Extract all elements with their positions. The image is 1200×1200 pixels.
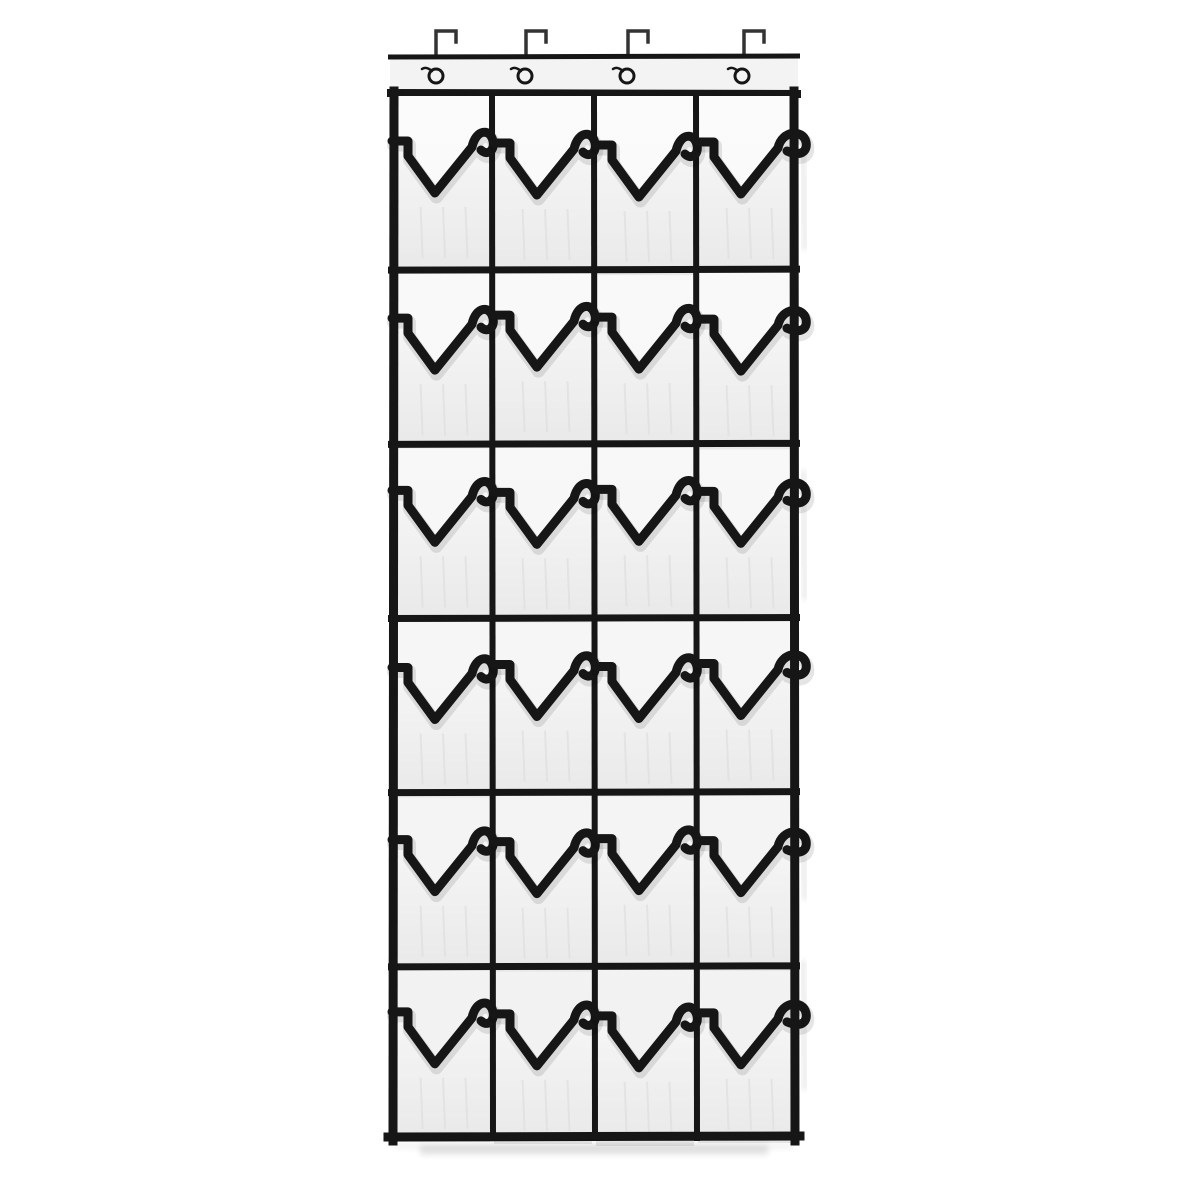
edge-smudge bbox=[803, 960, 805, 1090]
frame-left bbox=[393, 91, 394, 1141]
edge-smudge bbox=[803, 470, 805, 600]
door-hook-icon bbox=[436, 31, 456, 58]
row-seam bbox=[388, 966, 800, 967]
frame-bottom bbox=[388, 1136, 800, 1137]
header-band bbox=[387, 56, 801, 94]
row-seam bbox=[388, 443, 800, 444]
frame-right bbox=[794, 91, 795, 1141]
band-fabric bbox=[390, 58, 798, 93]
row-seam bbox=[388, 269, 800, 270]
edge-smudge bbox=[803, 150, 805, 250]
band-bottom-trim bbox=[387, 93, 801, 94]
edge-smudge bbox=[803, 830, 805, 900]
drop-shadow-wide bbox=[395, 1143, 793, 1149]
row-seam bbox=[388, 618, 800, 619]
product-photo bbox=[0, 0, 1200, 1200]
row-seam bbox=[388, 792, 800, 793]
band-top-trim bbox=[388, 56, 800, 57]
shoe-organizer bbox=[0, 0, 1200, 1200]
door-hook-icon bbox=[526, 31, 546, 58]
